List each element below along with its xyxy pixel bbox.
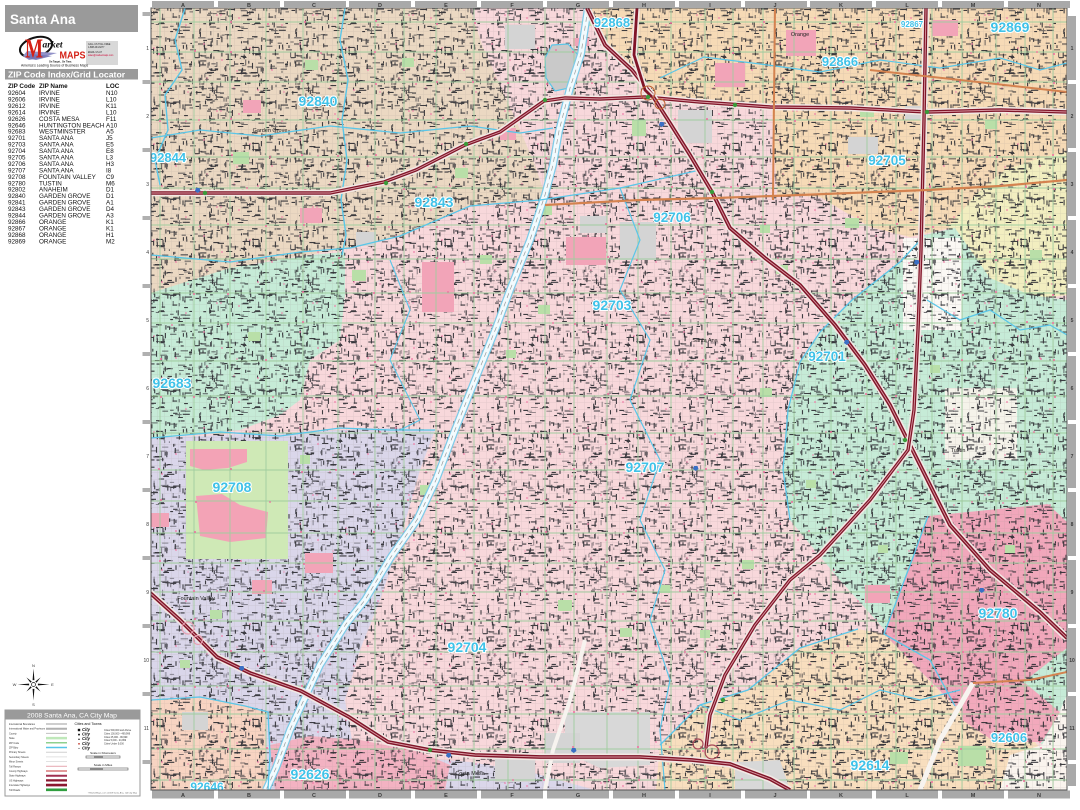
- svg-text:92703: 92703: [593, 297, 632, 313]
- svg-text:Santa Ana: Santa Ana: [10, 12, 76, 27]
- svg-text:S: S: [32, 702, 35, 707]
- svg-text:Interstate Highways: Interstate Highways: [9, 784, 31, 787]
- svg-text:M: M: [25, 34, 43, 64]
- svg-text:C: C: [312, 793, 316, 799]
- svg-text:8: 8: [1071, 522, 1074, 528]
- svg-text:Secondary Streets: Secondary Streets: [9, 756, 29, 759]
- svg-text:5: 5: [146, 318, 149, 324]
- svg-text:M: M: [971, 3, 976, 9]
- svg-text:State Highways: State Highways: [9, 775, 26, 778]
- svg-text:County: County: [9, 732, 17, 735]
- svg-text:92844: 92844: [150, 150, 187, 165]
- svg-text:EMAIL US AT: EMAIL US AT: [88, 51, 103, 54]
- svg-text:6: 6: [146, 386, 149, 392]
- svg-text:2: 2: [1071, 114, 1074, 120]
- svg-text:3: 3: [1071, 182, 1074, 188]
- svg-text:A: A: [181, 3, 185, 9]
- svg-text:10: 10: [1069, 658, 1075, 664]
- svg-text:CALL US TOLL FREE: CALL US TOLL FREE: [88, 43, 111, 46]
- svg-text:sales@marketmaps.com: sales@marketmaps.com: [88, 54, 113, 57]
- svg-text:92840: 92840: [299, 93, 338, 109]
- svg-text:92708: 92708: [213, 479, 252, 495]
- svg-text:America's Leading Source of B: America's Leading Source of Business Map…: [21, 64, 88, 68]
- svg-text:E: E: [444, 793, 448, 799]
- svg-text:ZIP Code: ZIP Code: [8, 83, 36, 90]
- svg-text:K: K: [839, 3, 843, 9]
- svg-text:92780: 92780: [979, 605, 1018, 621]
- svg-text:Minor Streets: Minor Streets: [9, 761, 24, 764]
- svg-text:Primary Streets: Primary Streets: [9, 751, 26, 754]
- svg-text:Cities Under 5,000: Cities Under 5,000: [104, 743, 124, 746]
- svg-text:1: 1: [1071, 46, 1074, 52]
- svg-text:Tustin: Tustin: [951, 448, 966, 454]
- svg-text:92843: 92843: [415, 194, 454, 210]
- svg-text:92869: 92869: [8, 238, 26, 245]
- svg-text:City: City: [82, 745, 91, 750]
- svg-text:Toll Ramps: Toll Ramps: [9, 765, 22, 768]
- svg-text:E: E: [444, 3, 448, 9]
- svg-text:8: 8: [146, 522, 149, 528]
- svg-text:Costa Mesa: Costa Mesa: [455, 771, 485, 777]
- svg-text:92707: 92707: [626, 459, 665, 475]
- svg-text:6: 6: [1071, 386, 1074, 392]
- svg-text:J: J: [773, 793, 776, 799]
- svg-text:N: N: [1037, 793, 1041, 799]
- svg-text:92683: 92683: [153, 375, 192, 391]
- svg-text:92866: 92866: [822, 54, 858, 69]
- svg-text:2008 Santa Ana, CA City Map: 2008 Santa Ana, CA City Map: [27, 713, 117, 720]
- svg-text:ZIP Bdry: ZIP Bdry: [9, 747, 19, 750]
- svg-text:D: D: [378, 793, 382, 799]
- svg-text:2: 2: [146, 114, 149, 120]
- svg-text:11: 11: [144, 726, 149, 732]
- svg-text:N: N: [1037, 3, 1041, 9]
- svg-text:LOC: LOC: [106, 83, 120, 90]
- svg-text:Santa Ana: Santa Ana: [692, 338, 718, 344]
- svg-text:US Highways: US Highways: [9, 779, 24, 782]
- svg-text:92868: 92868: [594, 15, 630, 30]
- svg-text:9: 9: [1071, 590, 1074, 596]
- svg-text:1-888-434-6277: 1-888-434-6277: [88, 47, 105, 49]
- svg-text:M: M: [971, 793, 976, 799]
- svg-text:B: B: [247, 3, 251, 9]
- svg-text:92626: 92626: [291, 766, 330, 782]
- svg-text:G: G: [576, 793, 580, 799]
- svg-text:92614: 92614: [851, 757, 890, 773]
- svg-text:92867: 92867: [901, 20, 924, 29]
- svg-text:ORANGE: ORANGE: [39, 238, 66, 245]
- svg-text:A: A: [181, 793, 185, 799]
- svg-text:10: 10: [143, 658, 149, 664]
- svg-text:Garden Grove: Garden Grove: [253, 128, 288, 134]
- svg-text:4: 4: [146, 250, 149, 256]
- svg-text:State: State: [9, 737, 15, 740]
- svg-text:ZIP Code: ZIP Code: [9, 742, 20, 745]
- svg-text:92606: 92606: [991, 730, 1027, 745]
- svg-text:9: 9: [146, 590, 149, 596]
- svg-text:Scale in Miles: Scale in Miles: [94, 763, 113, 767]
- svg-text:County Highways: County Highways: [9, 770, 28, 773]
- svg-text:11: 11: [1069, 726, 1075, 732]
- svg-text:7: 7: [1071, 454, 1074, 460]
- svg-text:ZIP Name: ZIP Name: [39, 83, 68, 90]
- svg-text:Cities and Towns: Cities and Towns: [74, 722, 101, 726]
- svg-text:92706: 92706: [653, 210, 691, 225]
- svg-text:H: H: [642, 793, 646, 799]
- svg-text:©MarketMaps.com | 2008 Santa: ©MarketMaps.com | 2008 Santa Ana, CA Cit…: [88, 792, 138, 795]
- svg-text:92869: 92869: [991, 19, 1030, 35]
- svg-text:Scale in Kilometers: Scale in Kilometers: [90, 751, 116, 755]
- svg-text:J: J: [773, 3, 776, 9]
- svg-text:C: C: [312, 3, 316, 9]
- svg-text:N: N: [32, 663, 35, 668]
- svg-text:4: 4: [1071, 250, 1074, 256]
- svg-text:92705: 92705: [868, 153, 906, 168]
- svg-text:7: 7: [146, 454, 149, 460]
- svg-text:B: B: [247, 793, 251, 799]
- svg-text:International Water and Provin: International Water and Provinces: [9, 728, 46, 731]
- svg-text:3: 3: [146, 182, 149, 188]
- svg-text:1: 1: [146, 46, 149, 52]
- svg-text:K: K: [839, 793, 843, 799]
- svg-text:W: W: [13, 682, 17, 687]
- svg-text:D: D: [378, 3, 382, 9]
- svg-text:92704: 92704: [448, 639, 487, 655]
- svg-text:5: 5: [1071, 318, 1074, 324]
- svg-text:Orange: Orange: [791, 32, 809, 38]
- svg-text:H: H: [642, 3, 646, 9]
- svg-text:Fountain Valley: Fountain Valley: [177, 596, 215, 602]
- svg-text:Toll Roads: Toll Roads: [9, 789, 21, 792]
- svg-text:G: G: [576, 3, 580, 9]
- svg-text:International Boundaries: International Boundaries: [9, 723, 36, 726]
- svg-text:M2: M2: [106, 238, 115, 245]
- svg-text:ZIP Code Index/Grid Locator: ZIP Code Index/Grid Locator: [8, 70, 126, 80]
- svg-text:92701: 92701: [808, 349, 846, 364]
- svg-text:E: E: [51, 682, 54, 687]
